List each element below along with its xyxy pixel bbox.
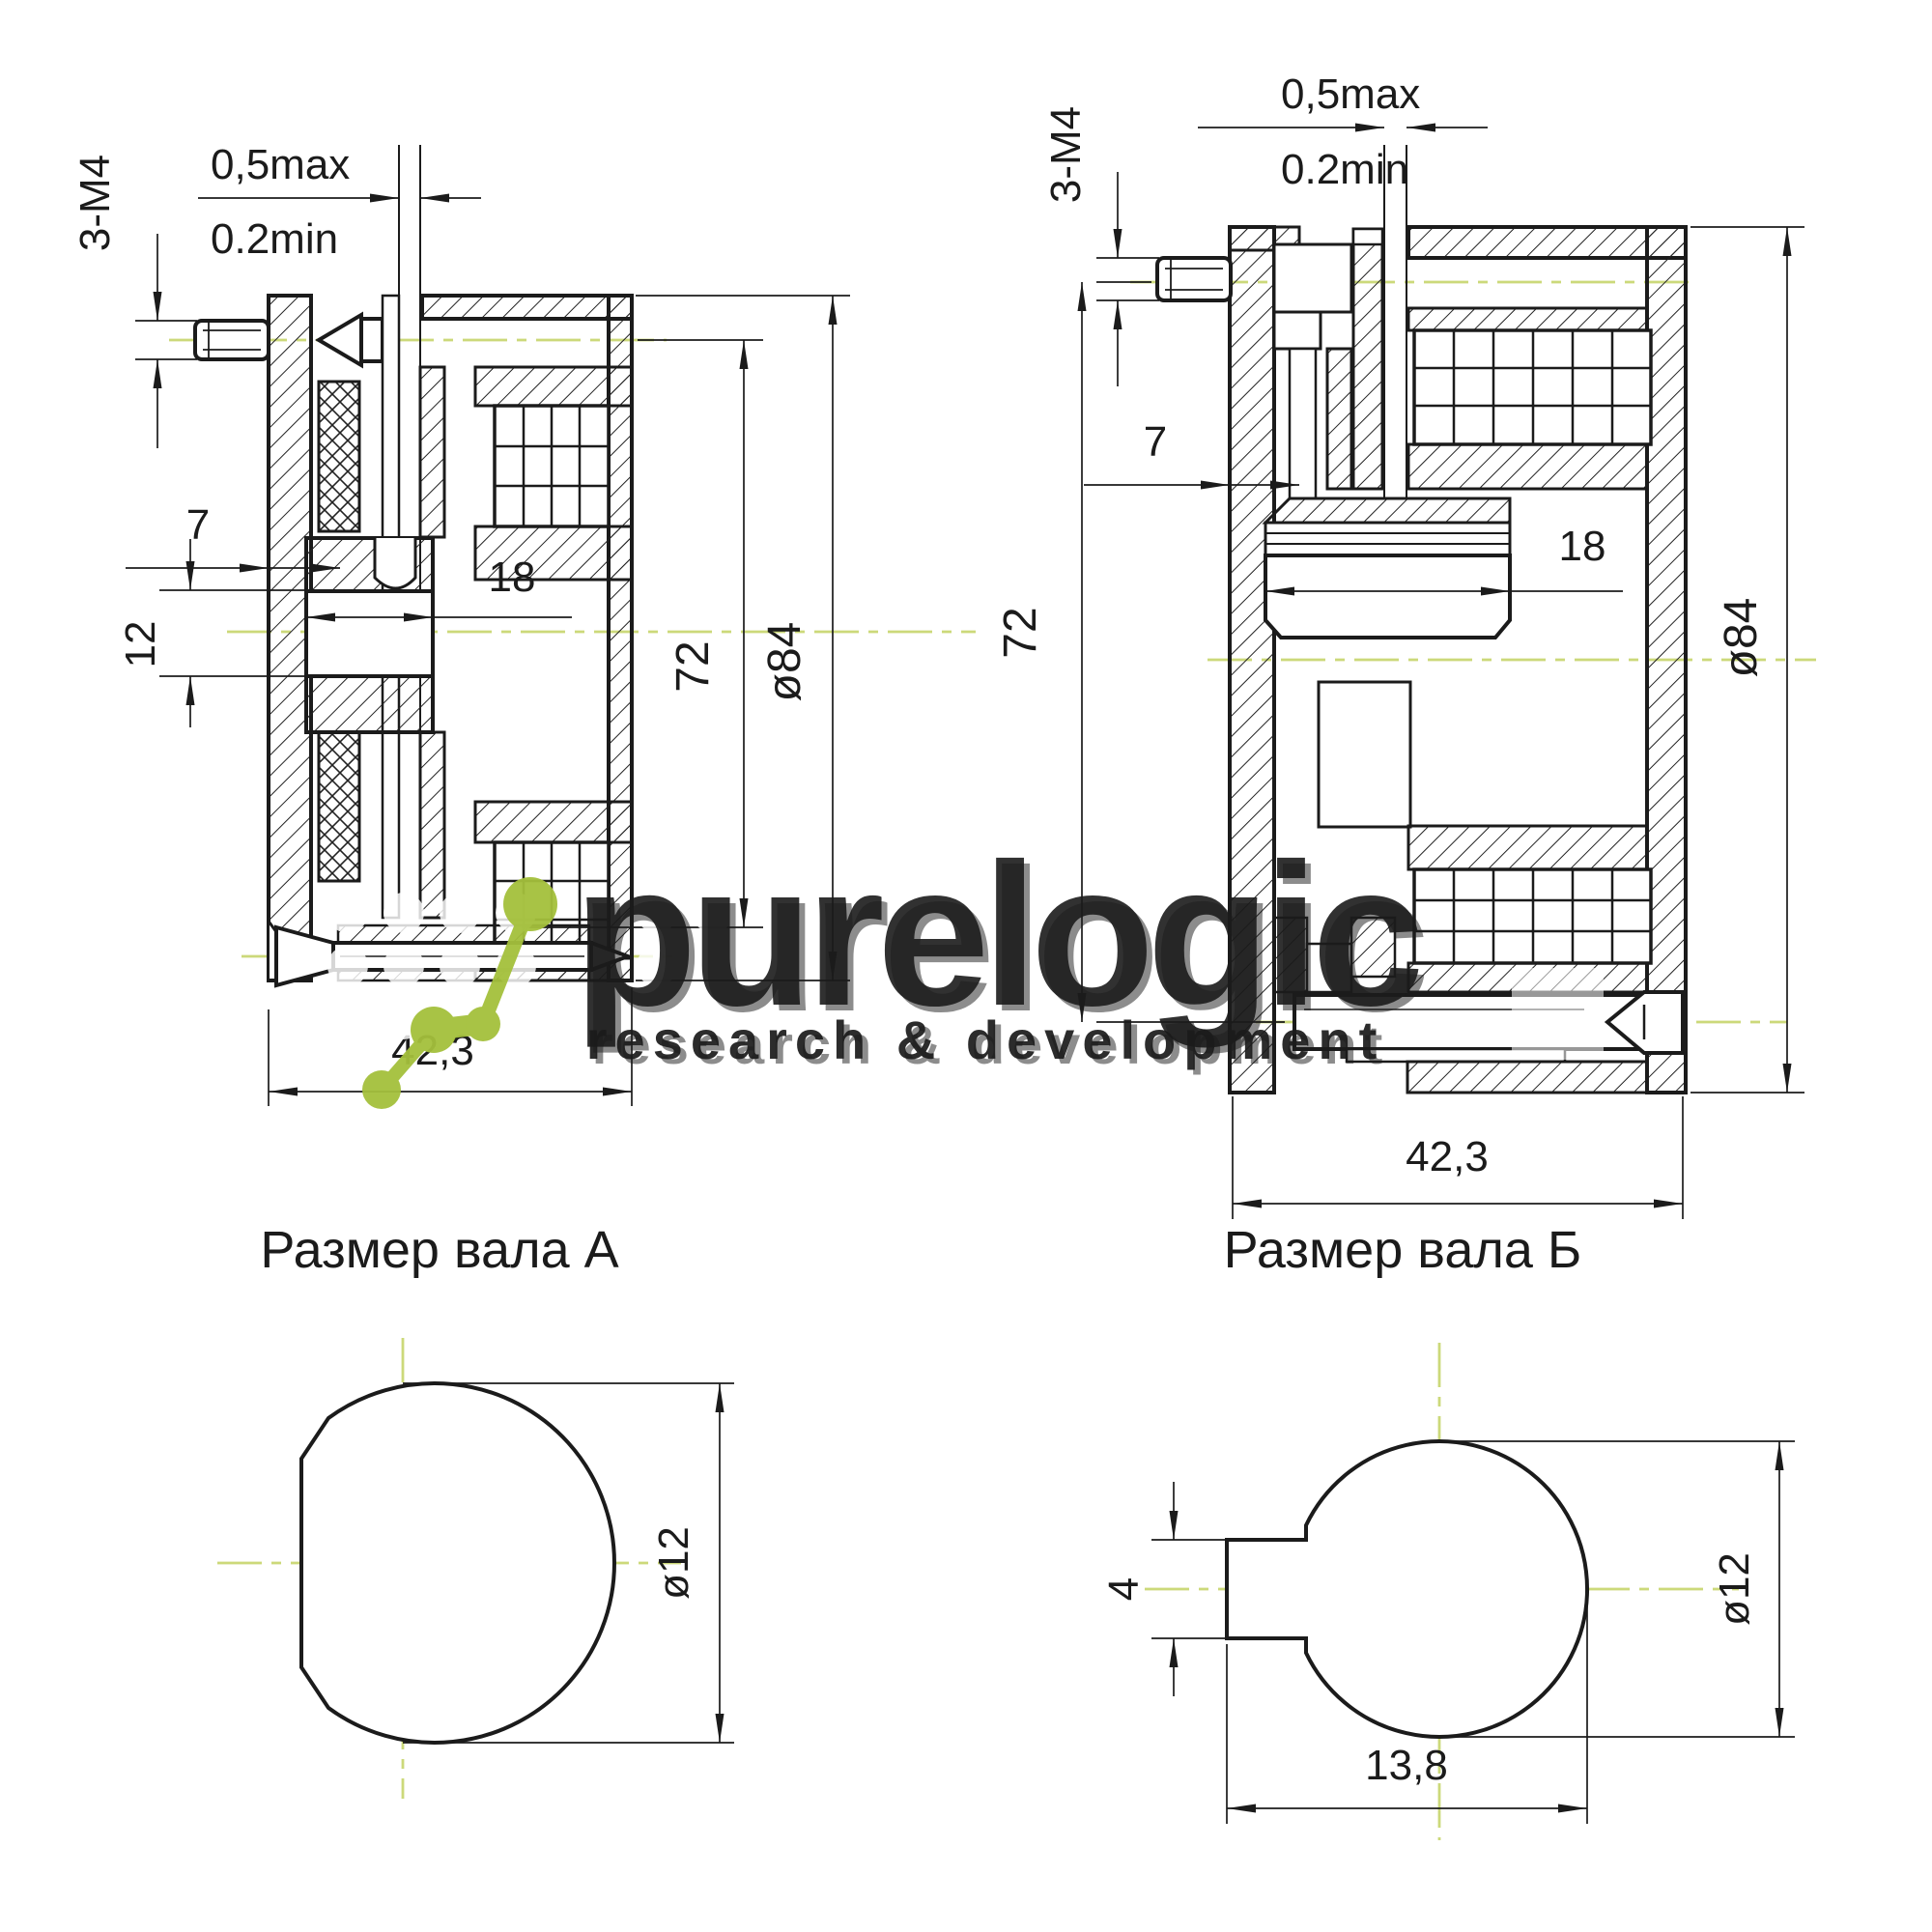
- dim-dia84: ø84: [1716, 598, 1767, 678]
- dim-dia72: 72: [995, 607, 1046, 658]
- dim-thread: 3-M4: [1042, 106, 1090, 203]
- shaft-a-profile: [301, 1383, 614, 1743]
- dim-dia72: 72: [668, 640, 719, 692]
- dim-len18: 18: [489, 554, 536, 601]
- coil-winding-top: [495, 406, 609, 526]
- dim-gap-max: 0,5max: [1281, 71, 1420, 118]
- shaft-a-view: ø12 Размер вала А: [217, 1221, 734, 1799]
- shaft-b-view: 4 ø12 13,8 Размер вала Б: [1100, 1221, 1795, 1840]
- dim-key-height: 4: [1100, 1577, 1148, 1601]
- dim-dia84: ø84: [759, 622, 810, 702]
- technical-drawing: 0,5max 0.2min 3-M4 7 12 18 72 ø84 42,3: [0, 0, 1932, 1932]
- drawing-canvas: 0,5max 0.2min 3-M4 7 12 18 72 ø84 42,3: [0, 0, 1932, 1932]
- dim-thread: 3-M4: [71, 155, 119, 251]
- dim-gap-min: 0.2min: [1281, 146, 1408, 193]
- coil-winding-top: [1414, 330, 1651, 444]
- shaft-b-title: Размер вала Б: [1224, 1221, 1582, 1279]
- dim-length: 42,3: [1406, 1133, 1489, 1180]
- shaft-b-profile: [1227, 1441, 1587, 1737]
- dim-offset7: 7: [1144, 418, 1167, 466]
- dim-dia12: ø12: [650, 1526, 697, 1600]
- dim-dia12: ø12: [1711, 1552, 1758, 1626]
- dim-dia12: 12: [117, 621, 164, 668]
- watermark-box: [1512, 968, 1604, 1060]
- dim-gap-min: 0.2min: [211, 215, 338, 263]
- dim-offset7: 7: [186, 501, 210, 549]
- watermark-tagline: research & development: [586, 1009, 1384, 1070]
- dim-gap-max: 0,5max: [211, 141, 350, 188]
- hub: [1265, 498, 1510, 638]
- coil-winding-bottom: [1414, 869, 1651, 963]
- dim-len18: 18: [1559, 523, 1606, 570]
- dim-key-length: 13,8: [1365, 1742, 1448, 1789]
- shaft-a-title: Размер вала А: [260, 1221, 618, 1279]
